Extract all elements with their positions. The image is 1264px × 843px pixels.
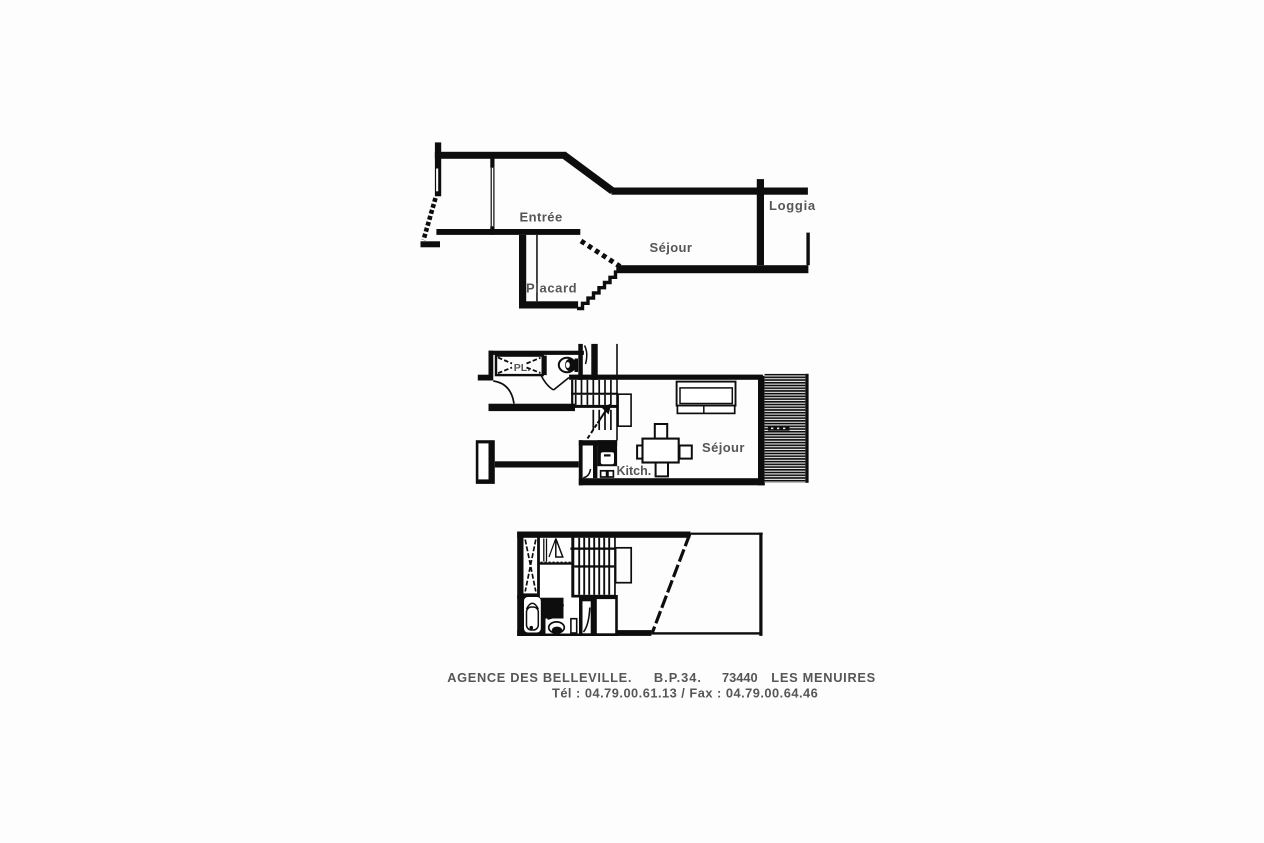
svg-text:Placard: Placard bbox=[526, 280, 577, 295]
svg-text:B.P.34.: B.P.34. bbox=[654, 670, 702, 685]
svg-text:LES MENUIRES: LES MENUIRES bbox=[771, 670, 876, 685]
svg-text:73440: 73440 bbox=[722, 670, 758, 685]
svg-text:Séjour: Séjour bbox=[650, 240, 693, 255]
svg-text:Loggia: Loggia bbox=[769, 198, 816, 213]
svg-text:Séjour: Séjour bbox=[702, 440, 745, 455]
svg-text:PL.: PL. bbox=[514, 362, 530, 374]
svg-text:Kitch.: Kitch. bbox=[617, 464, 652, 478]
svg-text:Tél : 04.79.00.61.13 / Fax : 0: Tél : 04.79.00.61.13 / Fax : 04.79.00.64… bbox=[552, 686, 818, 701]
svg-text:AGENCE DES BELLEVILLE.: AGENCE DES BELLEVILLE. bbox=[447, 670, 632, 685]
svg-text:Entrée: Entrée bbox=[520, 210, 563, 225]
